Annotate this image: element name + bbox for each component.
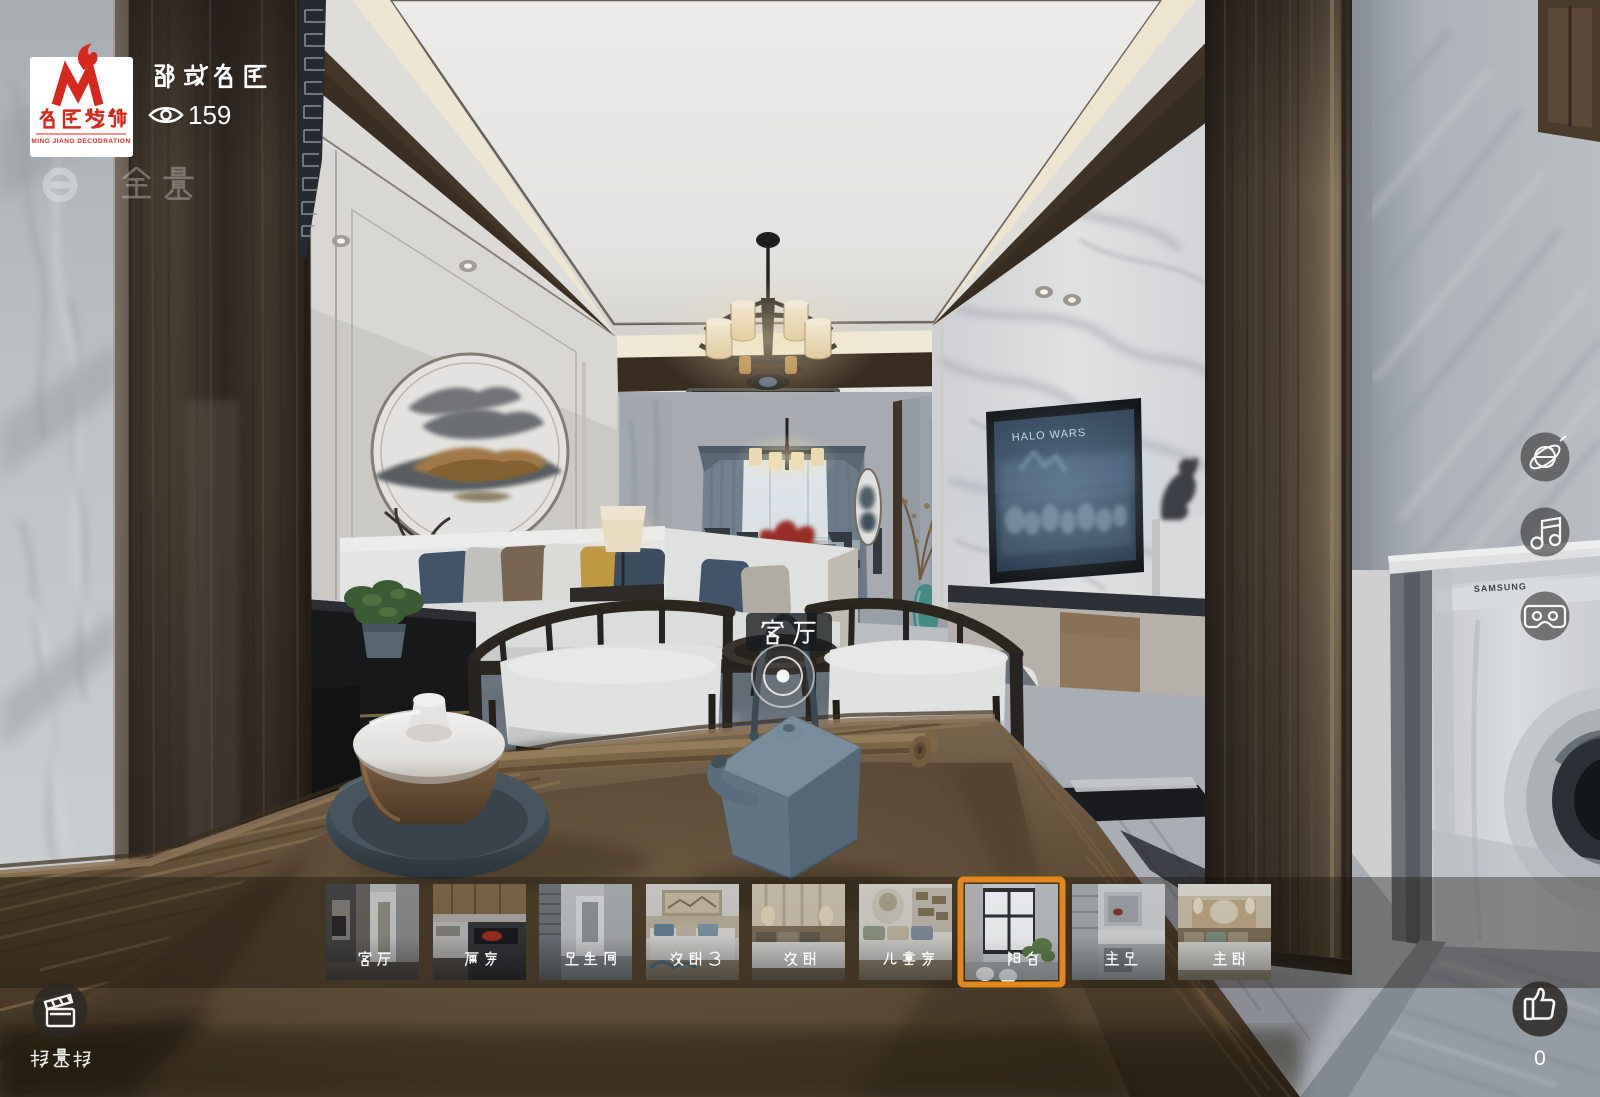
svg-text:0: 0	[1534, 1047, 1546, 1070]
svg-text:MING JIANG DECODRATION: MING JIANG DECODRATION	[31, 138, 130, 145]
svg-text:159: 159	[188, 100, 231, 130]
